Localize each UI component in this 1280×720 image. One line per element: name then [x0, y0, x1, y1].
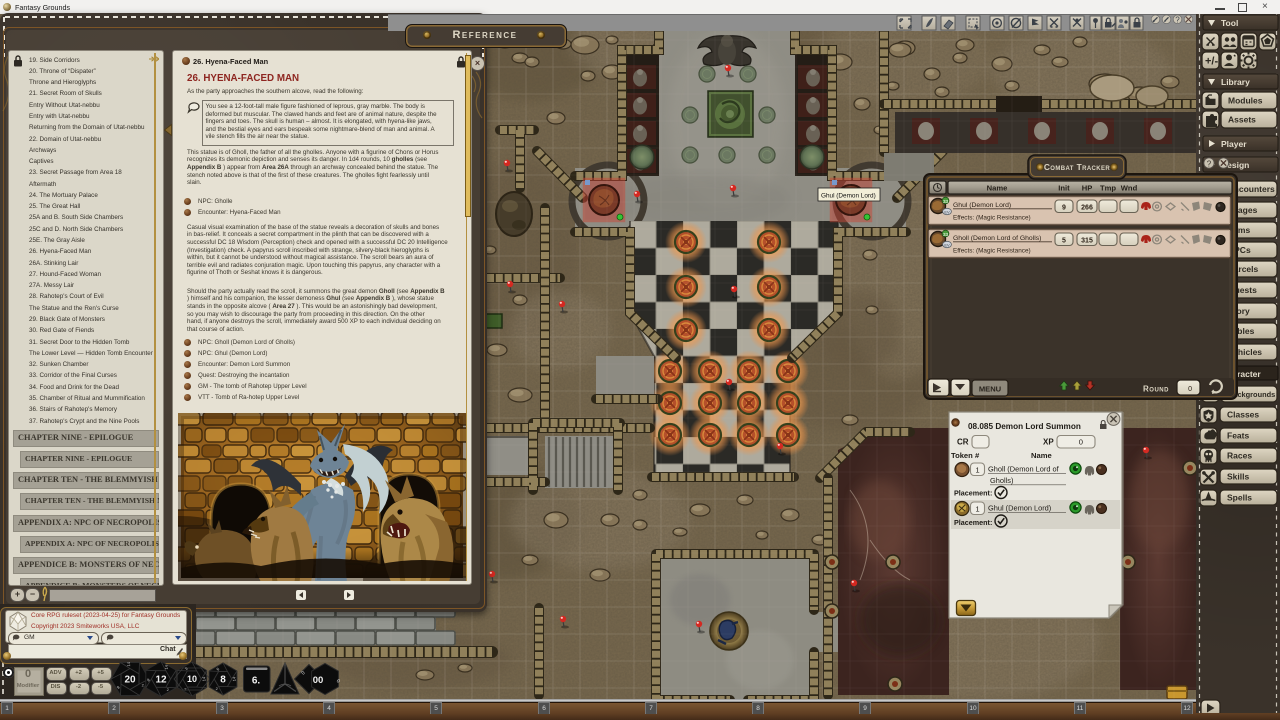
svg-text:33: 33	[943, 232, 949, 237]
svg-text:9: 9	[1062, 204, 1066, 211]
svg-text:Gholl (Demon Lord of Gholls): Gholl (Demon Lord of Gholls)	[953, 235, 1041, 242]
svg-text:1: 1	[975, 504, 979, 513]
svg-text:0: 0	[1188, 386, 1192, 393]
svg-text:33: 33	[943, 199, 949, 204]
svg-text:00: 00	[313, 675, 324, 686]
svg-text:0: 0	[1079, 438, 1083, 447]
svg-text:?: ?	[1175, 15, 1180, 24]
svg-text:Library: Library	[1221, 77, 1250, 87]
svg-text:08.085 Demon Lord Summon: 08.085 Demon Lord Summon	[968, 422, 1081, 431]
svg-text:Placement:: Placement:	[954, 518, 992, 527]
svg-text:Feats: Feats	[1227, 431, 1249, 441]
svg-text:+/-: +/-	[1205, 56, 1218, 68]
svg-text:HP: HP	[1082, 184, 1093, 193]
svg-text:315: 315	[1081, 237, 1093, 244]
svg-text:Ghul (Demon Lord): Ghul (Demon Lord)	[953, 202, 1011, 209]
svg-text:1: 1	[975, 465, 979, 474]
svg-text:Tool: Tool	[1221, 18, 1238, 28]
svg-text:Gholls): Gholls)	[990, 476, 1013, 485]
svg-text:Wnd: Wnd	[1121, 184, 1138, 193]
svg-text:14: 14	[126, 661, 131, 666]
svg-text:Spells: Spells	[1227, 493, 1252, 503]
svg-text:Tmp: Tmp	[1100, 184, 1116, 193]
svg-text:Init: Init	[1058, 184, 1070, 193]
svg-text:MENU: MENU	[979, 385, 1002, 394]
svg-text:Name: Name	[987, 184, 1008, 193]
svg-text:Placement:: Placement:	[954, 489, 992, 498]
svg-text:Combat Tracker: Combat Tracker	[1044, 162, 1111, 172]
svg-text:12: 12	[155, 675, 167, 686]
svg-text:Ghul (Demon Lord): Ghul (Demon Lord)	[988, 504, 1051, 513]
svg-text:Token: Token	[951, 451, 973, 460]
svg-text:Races: Races	[1227, 451, 1252, 461]
svg-text:CR: CR	[957, 438, 969, 447]
svg-text:Round: Round	[1143, 385, 1169, 394]
svg-text:EV: EV	[944, 243, 950, 248]
svg-text:Assets: Assets	[1228, 115, 1256, 125]
svg-text:10: 10	[187, 674, 197, 684]
svg-text:Modules: Modules	[1228, 96, 1263, 106]
svg-text:XP: XP	[1043, 438, 1054, 447]
svg-text:Classes: Classes	[1227, 410, 1259, 420]
svg-text:Player: Player	[1221, 139, 1247, 149]
svg-text:6.: 6.	[252, 676, 261, 687]
svg-text:Effects: (Magic Resistance): Effects: (Magic Resistance)	[953, 248, 1031, 255]
svg-text:?: ?	[1207, 159, 1212, 168]
svg-text:Effects: (Magic Resistance): Effects: (Magic Resistance)	[953, 215, 1031, 222]
svg-text:5: 5	[1062, 237, 1066, 244]
svg-text:266: 266	[1081, 204, 1093, 211]
svg-text:EV: EV	[944, 210, 950, 215]
svg-text:20: 20	[124, 675, 136, 686]
svg-text:Gholl (Demon Lord of: Gholl (Demon Lord of	[988, 465, 1060, 474]
svg-text:Skills: Skills	[1227, 472, 1249, 482]
svg-text:Name: Name	[1031, 451, 1052, 460]
svg-text:8: 8	[220, 675, 226, 686]
svg-text:Ghul (Demon Lord): Ghul (Demon Lord)	[821, 193, 876, 200]
